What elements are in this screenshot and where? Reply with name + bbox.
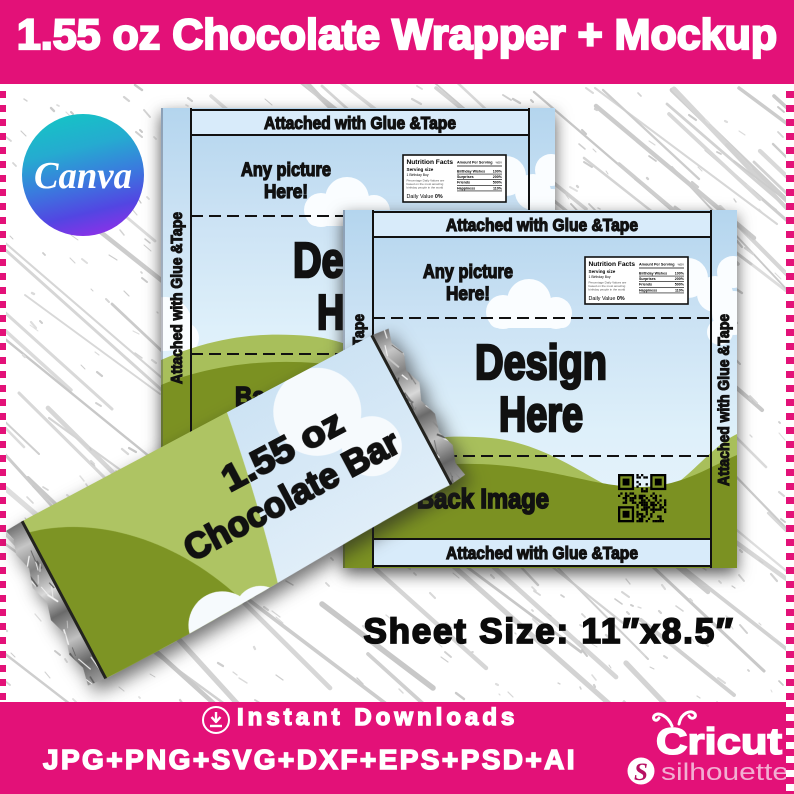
svg-text:Birthday Wishes: Birthday Wishes <box>639 272 667 276</box>
svg-text:%DV: %DV <box>496 161 503 165</box>
svg-text:Surprises: Surprises <box>457 175 474 179</box>
svg-text:Here!: Here! <box>264 181 308 203</box>
svg-text:silhouette: silhouette <box>661 759 789 786</box>
svg-text:110%: 110% <box>493 186 503 190</box>
svg-text:Design: Design <box>475 336 607 390</box>
svg-text:Attached with Glue &Tape: Attached with Glue &Tape <box>446 215 638 235</box>
svg-text:Attached with Glue &Tape: Attached with Glue &Tape <box>169 212 186 384</box>
svg-text:S: S <box>634 759 648 786</box>
svg-text:500%: 500% <box>493 181 503 185</box>
svg-text:100%: 100% <box>493 170 503 174</box>
svg-text:200%: 200% <box>493 175 503 179</box>
svg-text:Happiness: Happiness <box>457 186 475 190</box>
svg-text:Happiness: Happiness <box>639 288 657 292</box>
svg-text:Cricut: Cricut <box>656 721 782 760</box>
svg-text:Here!: Here! <box>446 283 490 305</box>
svg-text:Daily Value 0%: Daily Value 0% <box>589 296 625 302</box>
svg-text:200%: 200% <box>675 277 685 281</box>
svg-text:Friends: Friends <box>457 181 470 185</box>
svg-text:birthday people in the world: birthday people in the world <box>407 186 444 190</box>
svg-text:Nutrition Facts: Nutrition Facts <box>589 261 636 268</box>
svg-text:Serving size: Serving size <box>589 269 616 274</box>
svg-text:Birthday Wishes: Birthday Wishes <box>457 170 485 174</box>
svg-text:500%: 500% <box>675 283 685 287</box>
svg-text:110%: 110% <box>675 288 685 292</box>
svg-text:Any picture: Any picture <box>241 159 331 181</box>
svg-text:Canva: Canva <box>34 155 132 197</box>
svg-text:1 Birthday Boy: 1 Birthday Boy <box>407 173 429 177</box>
svg-text:Here: Here <box>499 388 583 442</box>
svg-text:Amount Per Serving: Amount Per Serving <box>457 161 492 165</box>
svg-text:Surprises: Surprises <box>639 277 656 281</box>
svg-text:%DV: %DV <box>678 263 685 267</box>
svg-text:Daily Value 0%: Daily Value 0% <box>407 194 443 200</box>
svg-text:Friends: Friends <box>639 283 652 287</box>
svg-text:Serving size: Serving size <box>407 167 434 172</box>
svg-text:100%: 100% <box>675 272 685 276</box>
svg-text:Attached with Glue &Tape: Attached with Glue &Tape <box>446 543 638 563</box>
svg-text:Amount Per Serving: Amount Per Serving <box>639 263 674 267</box>
svg-text:birthday people in the world: birthday people in the world <box>589 288 626 292</box>
svg-text:Attached with Glue &Tape: Attached with Glue &Tape <box>716 314 733 486</box>
svg-text:Attached with Glue &Tape: Attached with Glue &Tape <box>264 113 456 133</box>
svg-text:Any picture: Any picture <box>423 261 513 283</box>
svg-text:1 Birthday Boy: 1 Birthday Boy <box>589 275 611 279</box>
svg-text:Nutrition Facts: Nutrition Facts <box>407 159 454 166</box>
